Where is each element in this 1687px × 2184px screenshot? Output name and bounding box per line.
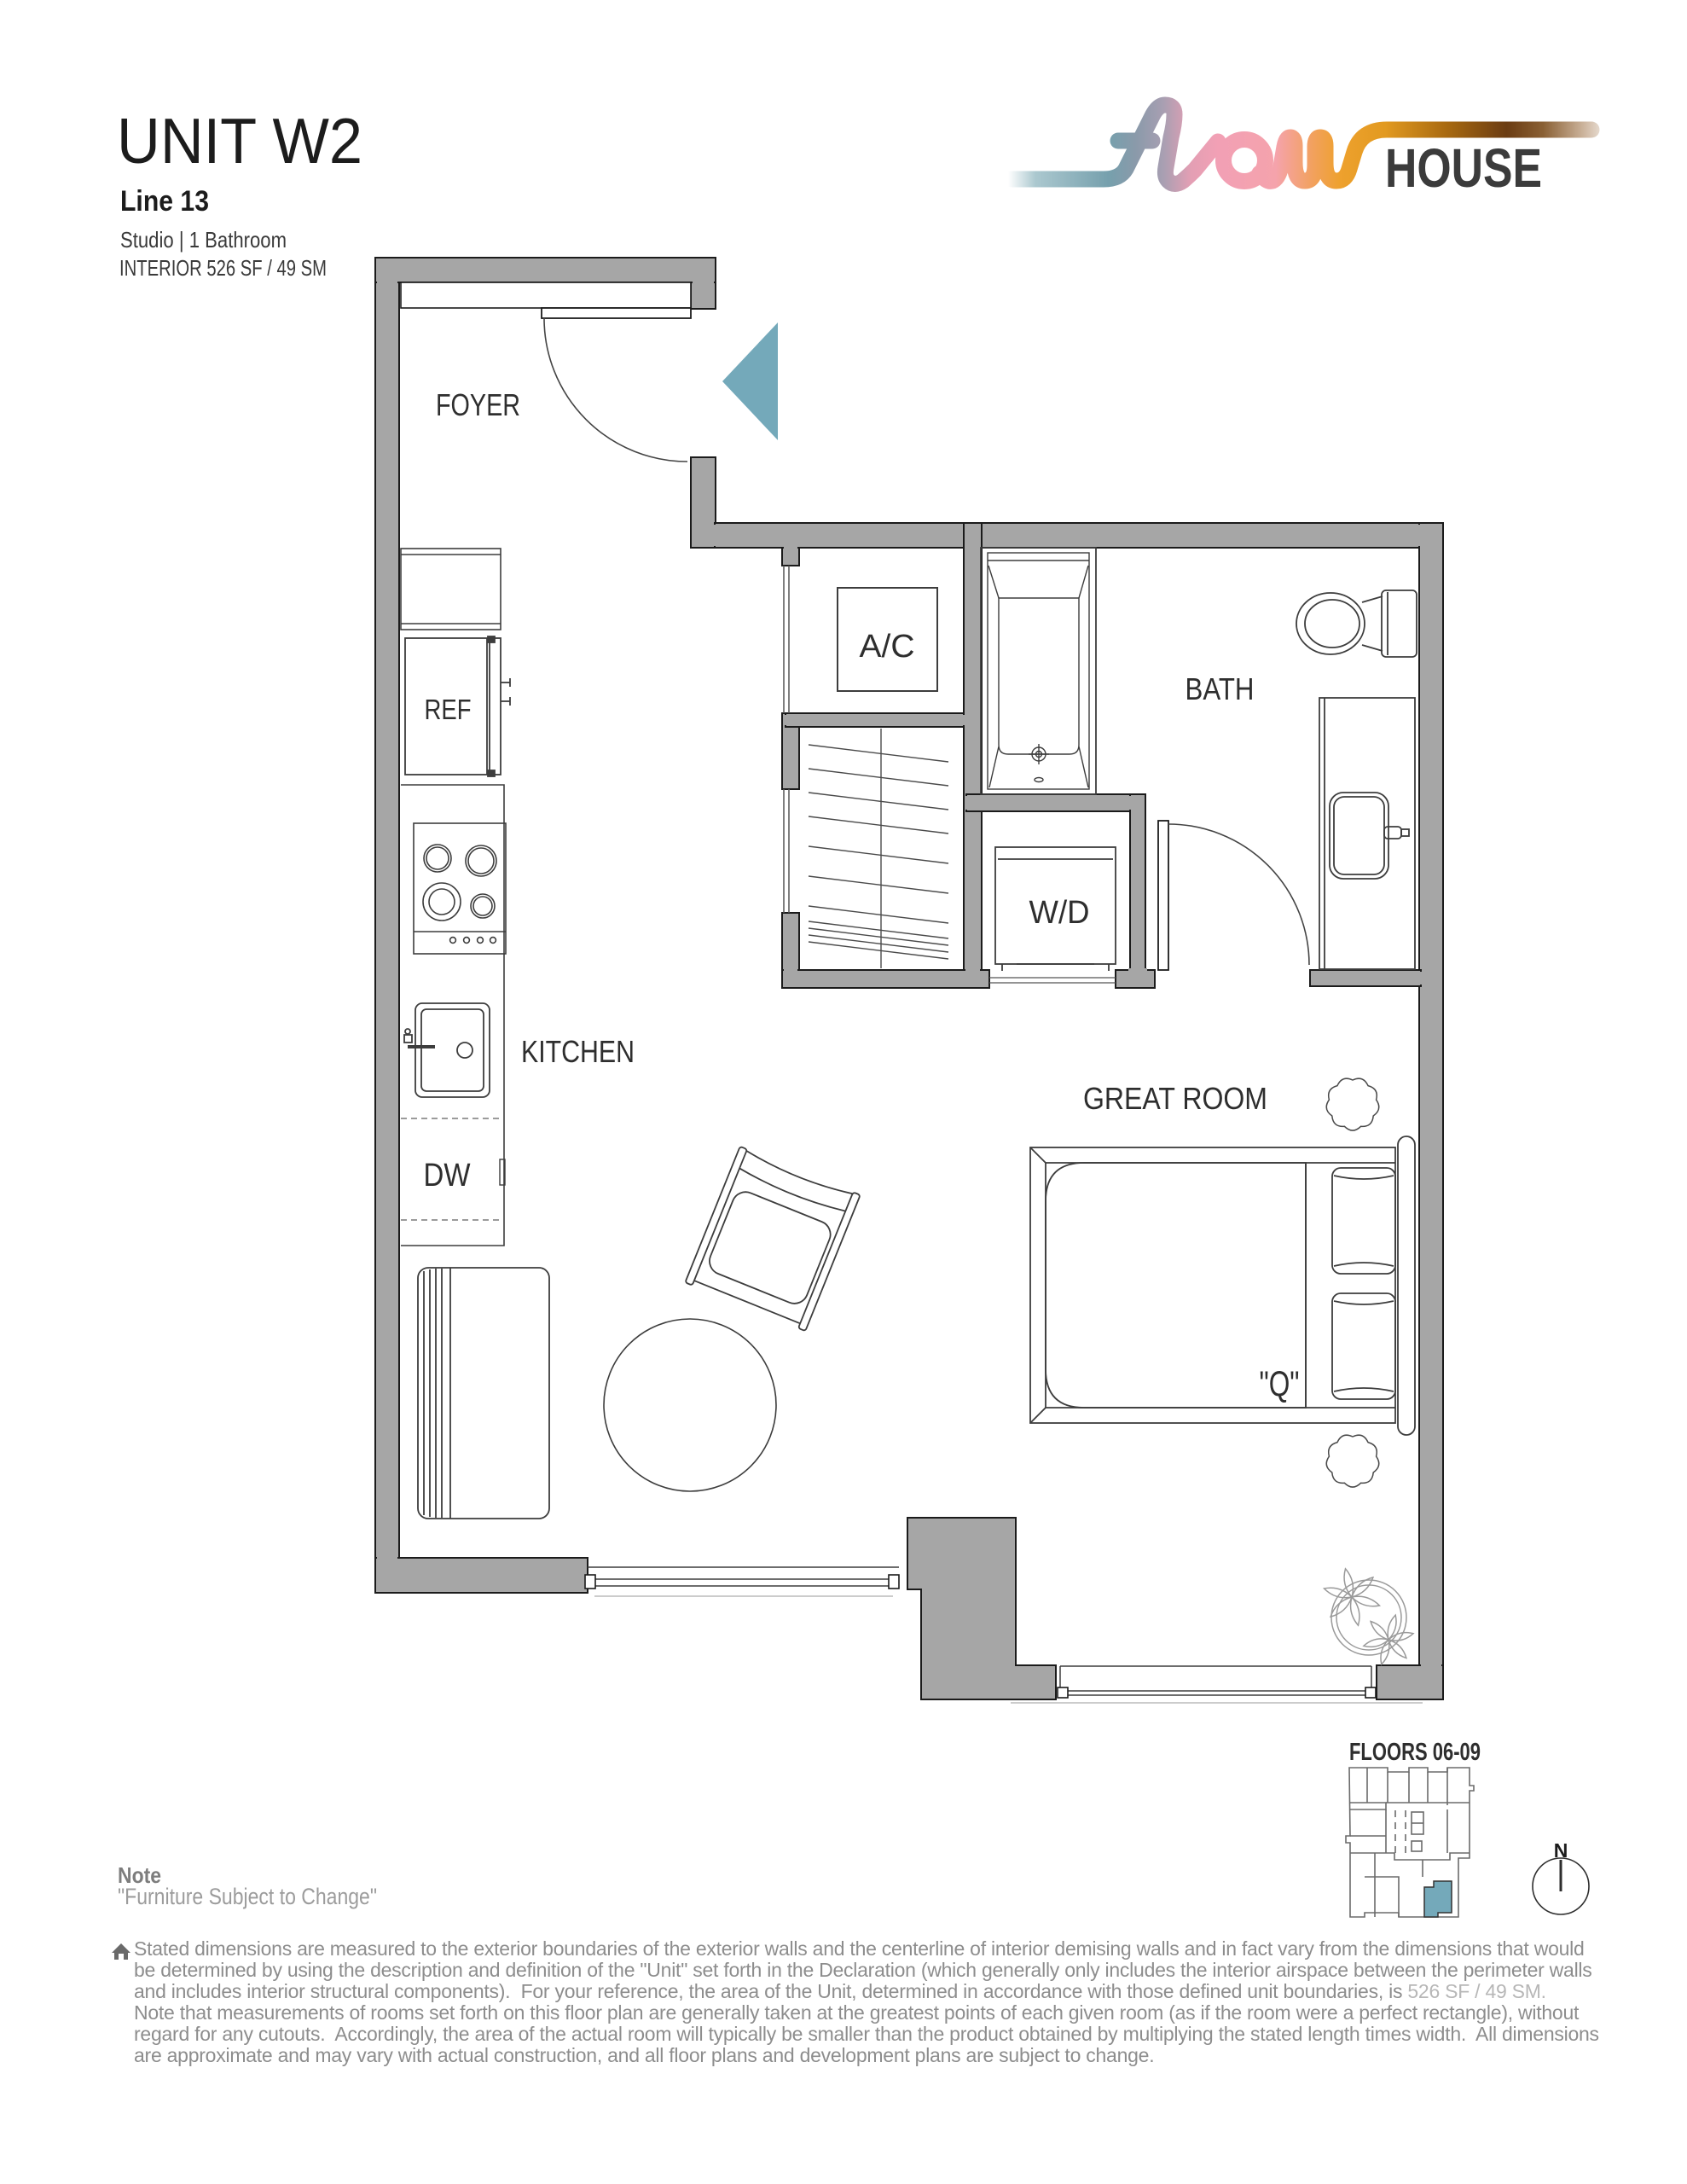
svg-text:HOUSE: HOUSE — [1385, 137, 1542, 199]
svg-text:A/C: A/C — [860, 629, 915, 665]
svg-text:KITCHEN: KITCHEN — [521, 1034, 635, 1069]
svg-text:DW: DW — [424, 1158, 471, 1194]
svg-text:FLOORS 06-09: FLOORS 06-09 — [1349, 1739, 1481, 1766]
svg-text:REF: REF — [425, 694, 472, 725]
svg-text:"Q": "Q" — [1260, 1363, 1300, 1403]
svg-text:FOYER: FOYER — [436, 387, 520, 422]
svg-text:BATH: BATH — [1186, 671, 1255, 706]
svg-text:GREAT ROOM: GREAT ROOM — [1083, 1081, 1267, 1116]
svg-text:INTERIOR 526 SF / 49 SM: INTERIOR 526 SF / 49 SM — [119, 255, 327, 281]
svg-text:UNIT W2: UNIT W2 — [117, 105, 362, 177]
svg-text:Studio | 1 Bathroom: Studio | 1 Bathroom — [120, 227, 287, 253]
svg-text:Line 13: Line 13 — [120, 185, 209, 218]
svg-text:W/D: W/D — [1029, 895, 1090, 931]
svg-text:"Furniture Subject to Change": "Furniture Subject to Change" — [118, 1884, 377, 1909]
svg-text:N: N — [1554, 1839, 1568, 1862]
